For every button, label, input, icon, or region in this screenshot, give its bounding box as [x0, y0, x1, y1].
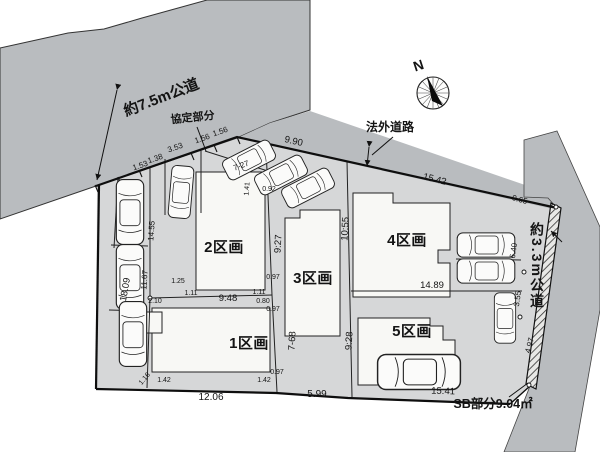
- dim-label: 14:55: [146, 220, 156, 241]
- dim-label: 9:27: [273, 234, 285, 253]
- lot1-label: 1区画: [229, 335, 269, 352]
- north-label: N: [411, 56, 426, 74]
- dim-label: 0.97: [270, 369, 284, 376]
- dim-label: 11.67: [139, 269, 149, 290]
- dim-label: 2.10: [148, 298, 162, 305]
- dim-label: 10:55: [339, 217, 351, 241]
- car-icon: [378, 355, 461, 390]
- car-icon: [457, 233, 515, 257]
- dim-label: 1.42: [157, 377, 171, 384]
- unofficial-road-label: 法外道路: [366, 119, 415, 134]
- lot2-label: 2区画: [204, 239, 244, 256]
- dim-label: 0.92: [262, 186, 276, 193]
- car-icon: [168, 165, 195, 219]
- dim-label: 0.80: [256, 298, 270, 305]
- dim-label: 15.41: [431, 386, 455, 398]
- compass-icon: N: [411, 56, 449, 109]
- site-plan: N 約7.5m公道 協定部分 法外道路 SB部分9.04㎡ 1区画 2区画 3区…: [0, 0, 600, 452]
- dim-label: 5.99: [307, 389, 327, 400]
- right-road-label: 約3.3m公道: [527, 222, 547, 310]
- lot3-label: 3区画: [293, 270, 333, 287]
- dim-label: 12.06: [198, 392, 223, 403]
- sb-section-label: SB部分9.04㎡: [453, 396, 533, 411]
- car-icon: [116, 180, 143, 245]
- dim-label: 1.41: [244, 182, 252, 196]
- dim-label: 14.89: [420, 280, 444, 291]
- site-plan-svg: N 約7.5m公道 協定部分 法外道路 SB部分9.04㎡ 1区画 2区画 3区…: [0, 0, 600, 452]
- dim-label: 1.11: [252, 289, 265, 296]
- dim-label: 9:48: [219, 293, 238, 304]
- dim-label: 1.25: [171, 278, 185, 285]
- car-icon: [457, 259, 515, 283]
- dim-label: 0.97: [266, 306, 280, 313]
- dim-label: 1.42: [257, 377, 271, 384]
- dim-label: 1.11: [184, 290, 197, 297]
- building-outline-lot2: [196, 172, 265, 290]
- car-icon: [119, 302, 146, 367]
- lot5-label: 5区画: [392, 323, 432, 340]
- dim-label: 0.97: [266, 274, 280, 281]
- lot4-label: 4区画: [387, 232, 427, 249]
- dim-label: 9:28: [344, 331, 356, 350]
- dim-label: 7-68: [287, 331, 299, 351]
